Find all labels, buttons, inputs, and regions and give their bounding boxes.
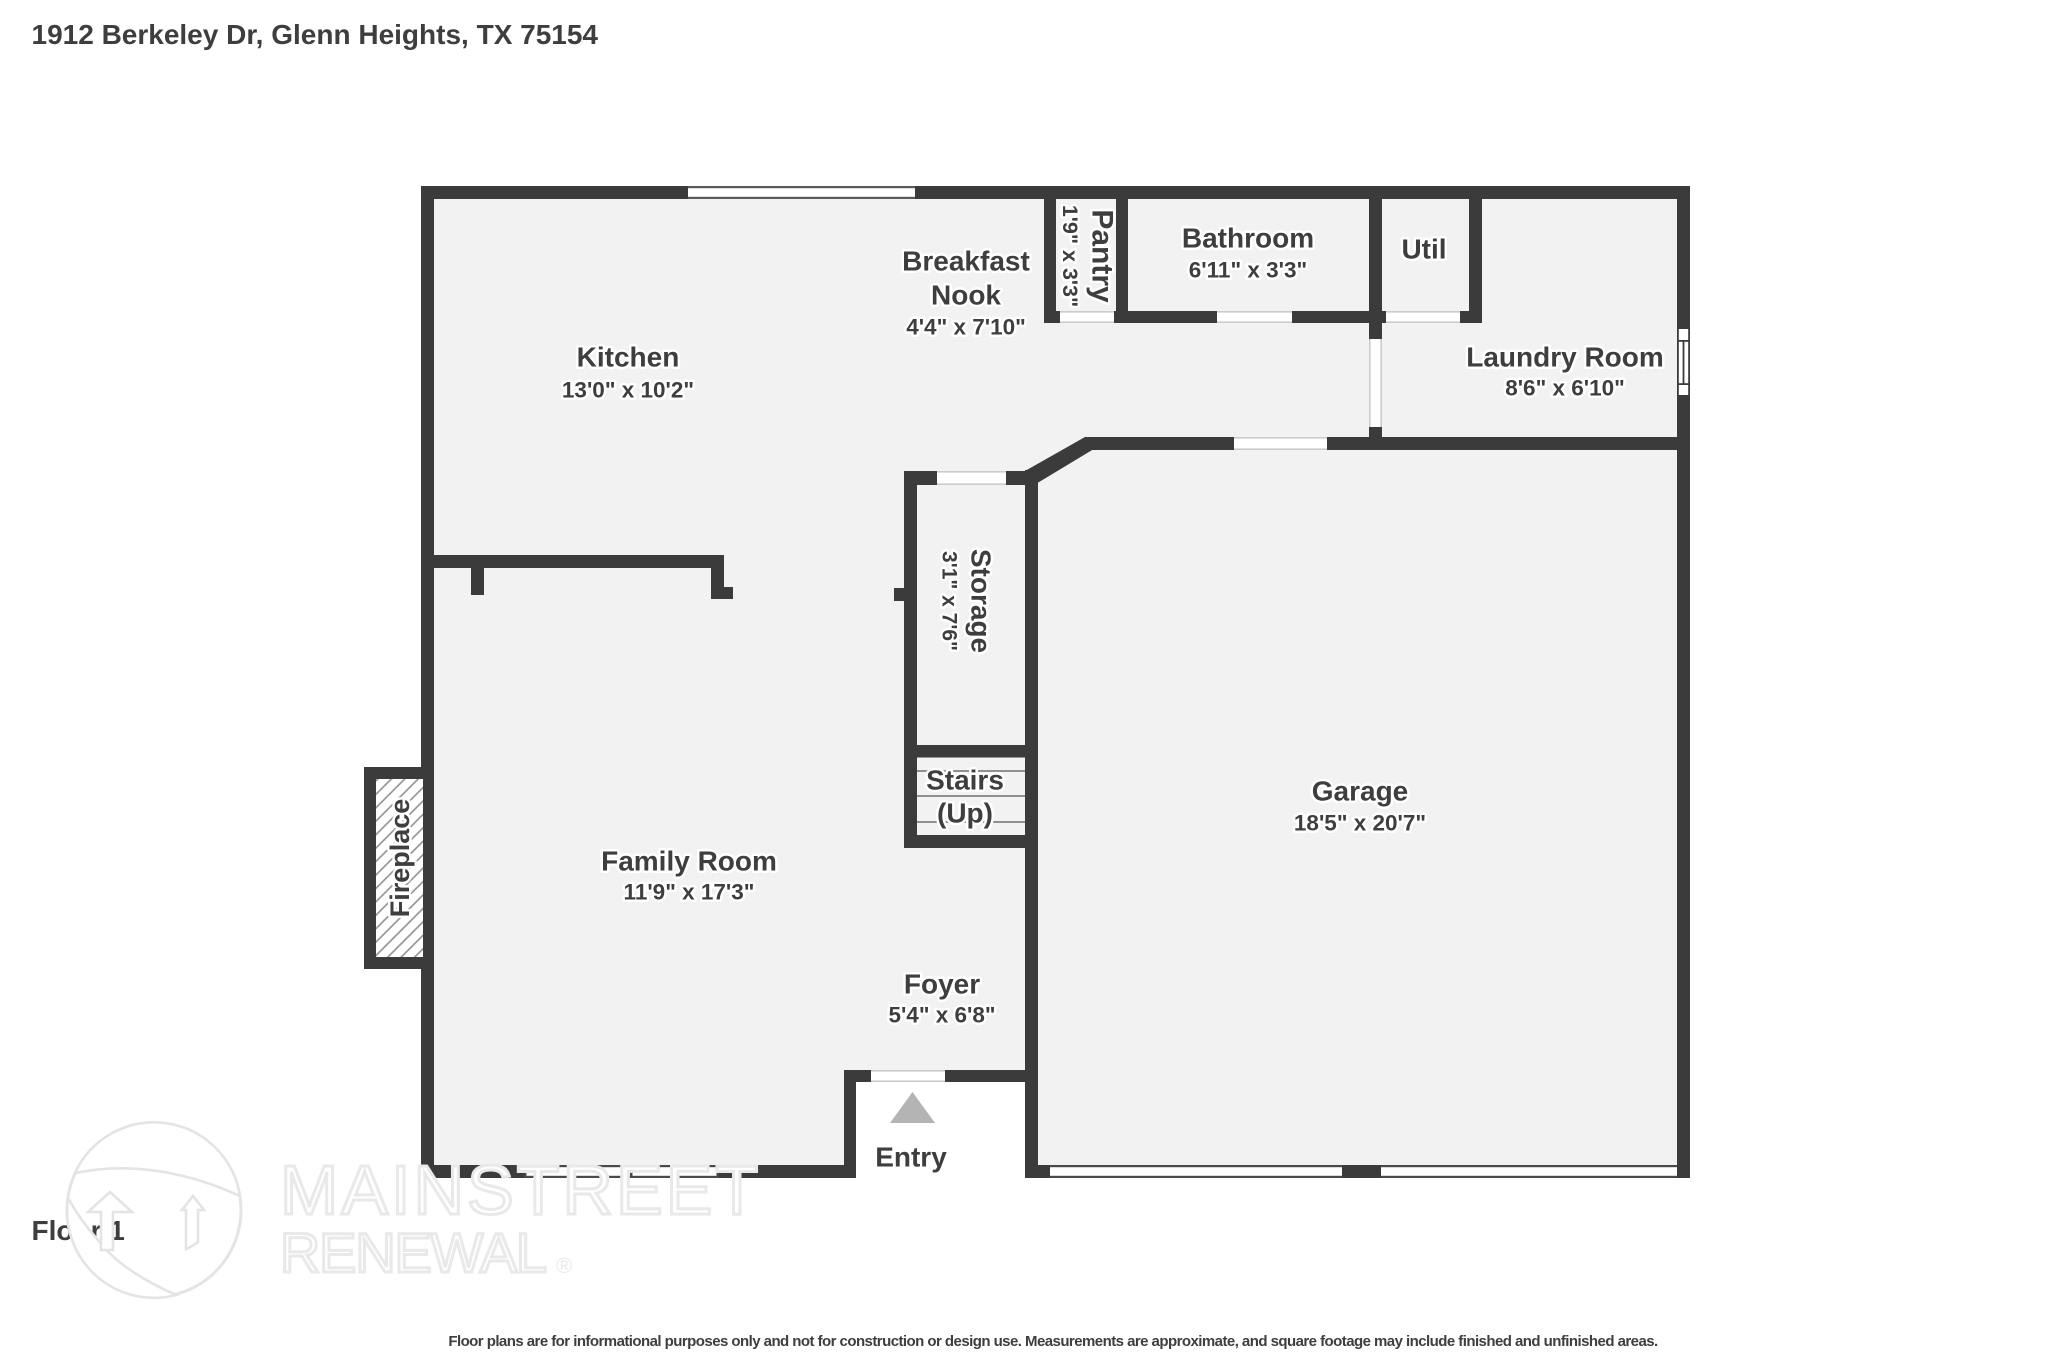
svg-text:6'11" x 3'3": 6'11" x 3'3" xyxy=(1189,258,1307,283)
svg-text:13'0" x 10'2": 13'0" x 10'2" xyxy=(562,378,694,403)
svg-text:(Up): (Up) xyxy=(937,798,993,829)
svg-text:Bathroom: Bathroom xyxy=(1182,223,1314,254)
svg-text:5'4" x 6'8": 5'4" x 6'8" xyxy=(888,1003,995,1028)
svg-text:Laundry Room: Laundry Room xyxy=(1466,342,1664,373)
svg-text:11'9" x 17'3": 11'9" x 17'3" xyxy=(624,880,755,905)
svg-text:Entry: Entry xyxy=(875,1142,947,1173)
svg-text:Pantry: Pantry xyxy=(1086,209,1119,303)
svg-text:1912 Berkeley Dr, Glenn Height: 1912 Berkeley Dr, Glenn Heights, TX 7515… xyxy=(32,19,599,50)
svg-text:Nook: Nook xyxy=(931,280,1001,311)
svg-text:Floor plans are for informatio: Floor plans are for informational purpos… xyxy=(448,1333,1658,1350)
svg-text:Foyer: Foyer xyxy=(904,969,980,1000)
svg-text:8'6" x 6'10": 8'6" x 6'10" xyxy=(1505,376,1625,401)
svg-text:18'5" x 20'7": 18'5" x 20'7" xyxy=(1294,811,1426,836)
svg-text:Breakfast: Breakfast xyxy=(902,246,1030,277)
svg-text:Garage: Garage xyxy=(1312,776,1409,807)
svg-text:Util: Util xyxy=(1401,234,1446,265)
svg-text:Family Room: Family Room xyxy=(601,846,777,877)
svg-text:®: ® xyxy=(556,1253,572,1278)
svg-text:RENEWAL: RENEWAL xyxy=(280,1221,546,1284)
svg-text:4'4" x 7'10": 4'4" x 7'10" xyxy=(906,315,1026,340)
svg-text:Storage: Storage xyxy=(966,549,997,653)
svg-text:MAINSTREET: MAINSTREET xyxy=(280,1151,761,1229)
svg-text:3'1" x 7'6": 3'1" x 7'6" xyxy=(938,551,961,651)
svg-text:1'9" x 3'3": 1'9" x 3'3" xyxy=(1058,205,1082,307)
svg-text:Fireplace: Fireplace xyxy=(385,799,415,918)
svg-text:Stairs: Stairs xyxy=(926,765,1004,796)
svg-text:Kitchen: Kitchen xyxy=(577,342,680,373)
